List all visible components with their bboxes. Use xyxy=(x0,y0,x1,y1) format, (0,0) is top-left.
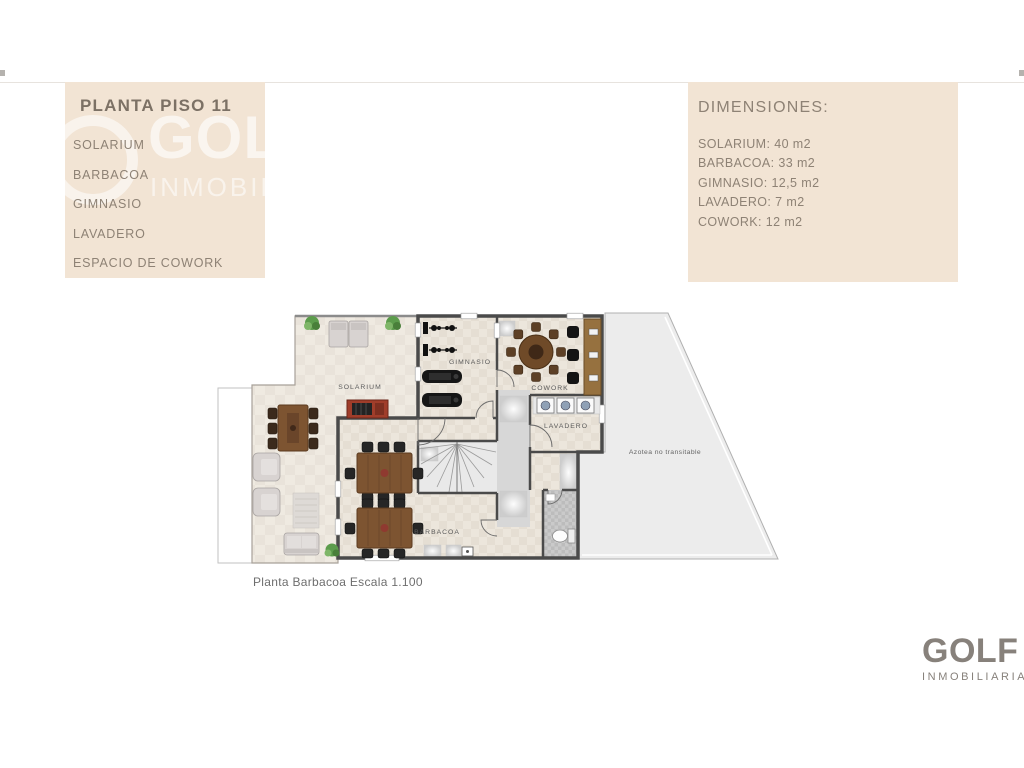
cowork-round-table xyxy=(507,323,566,382)
cowork-label: COWORK xyxy=(531,385,568,392)
treadmill-icon xyxy=(422,370,462,383)
terrace-dining-table xyxy=(268,405,318,451)
watermark-tagline: INMOBILIARIA xyxy=(150,174,265,200)
brand-logo: GOLF INMOBILIARIA xyxy=(922,634,1022,683)
dim-cowork: COWORK: 12 m2 xyxy=(698,215,803,229)
solarium-label: SOLARIUM xyxy=(338,384,382,391)
dim-barbacoa: BARBACOA: 33 m2 xyxy=(698,156,815,170)
gimnasio-label: GIMNASIO xyxy=(449,359,491,366)
terrace-ledge xyxy=(218,388,252,563)
floorplan: Azotea no transitable xyxy=(215,305,780,575)
watermark-ring-icon xyxy=(65,115,138,205)
barbacoa-label: BARBACOA xyxy=(414,529,460,536)
amenity-cowork: ESPACIO DE COWORK xyxy=(73,256,223,270)
azotea-label: Azotea no transitable xyxy=(629,449,701,456)
brand-name: GOLF xyxy=(922,634,1022,668)
dim-solarium: SOLARIUM: 40 m2 xyxy=(698,137,811,151)
drain-icon xyxy=(462,547,473,556)
cowork-desk xyxy=(567,319,601,395)
treadmill-icon xyxy=(422,393,462,407)
dimensions-panel: DIMENSIONES: SOLARIUM: 40 m2 BARBACOA: 3… xyxy=(688,82,958,282)
grill-icon xyxy=(347,400,388,418)
flyer-page: { "panels": { "left": { "title": "PLANTA… xyxy=(0,0,1024,768)
azotea-area: Azotea no transitable xyxy=(578,313,778,559)
left-edge-mark xyxy=(0,70,5,76)
plan-caption: Planta Barbacoa Escala 1.100 xyxy=(253,575,423,589)
floor-info-panel: GOLF INMOBILIARIA PLANTA PISO 11 SOLARIU… xyxy=(65,82,265,278)
amenity-lavadero: LAVADERO xyxy=(73,227,146,241)
sink-icon xyxy=(546,494,555,501)
dim-gimnasio: GIMNASIO: 12,5 m2 xyxy=(698,176,819,190)
amenity-solarium: SOLARIUM xyxy=(73,138,145,152)
floor-title: PLANTA PISO 11 xyxy=(80,96,232,116)
dim-lavadero: LAVADERO: 7 m2 xyxy=(698,195,805,209)
rug xyxy=(293,493,319,528)
dimensions-title: DIMENSIONES: xyxy=(698,99,829,117)
brand-tagline: INMOBILIARIA xyxy=(922,671,1022,683)
amenity-gimnasio: GIMNASIO xyxy=(73,197,142,211)
toilet-icon xyxy=(553,529,576,543)
sofa xyxy=(284,533,319,555)
right-edge-mark xyxy=(1019,70,1024,76)
washing-machines xyxy=(533,397,600,414)
lavadero-label: LAVADERO xyxy=(544,423,588,430)
watermark-wordmark: GOLF xyxy=(148,108,265,168)
amenity-barbacoa: BARBACOA xyxy=(73,168,149,182)
